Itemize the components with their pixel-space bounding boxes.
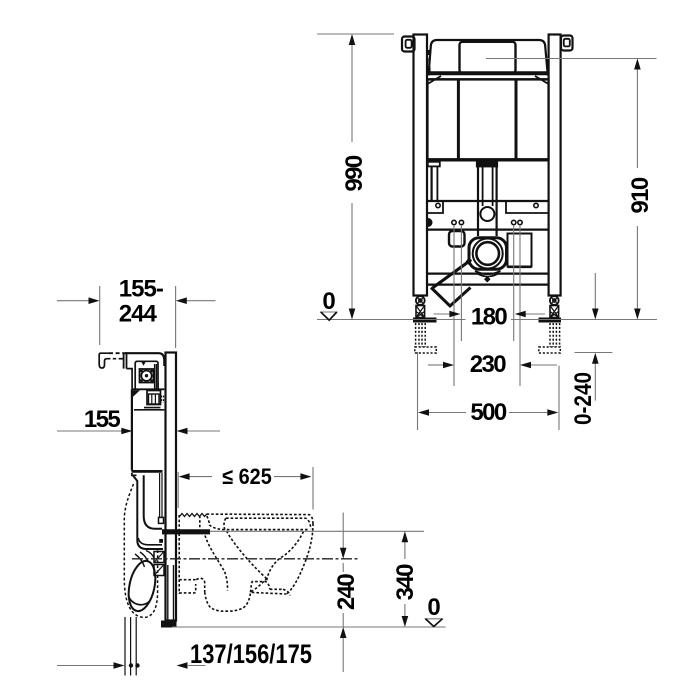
svg-text:500: 500 — [470, 399, 506, 426]
svg-text:910: 910 — [627, 177, 654, 213]
svg-text:230: 230 — [470, 351, 506, 378]
svg-text:≤ 625: ≤ 625 — [222, 464, 272, 489]
svg-text:155-: 155- — [119, 276, 164, 303]
svg-text:137/156/175: 137/156/175 — [190, 639, 312, 669]
svg-text:0: 0 — [322, 288, 335, 315]
svg-text:0-240: 0-240 — [570, 372, 597, 425]
svg-text:340: 340 — [392, 564, 419, 600]
svg-text:0: 0 — [427, 594, 440, 621]
svg-text:180: 180 — [471, 304, 507, 331]
svg-text:155: 155 — [84, 406, 120, 433]
svg-text:990: 990 — [341, 155, 368, 191]
svg-text:244: 244 — [119, 301, 158, 328]
svg-text:240: 240 — [333, 574, 360, 610]
